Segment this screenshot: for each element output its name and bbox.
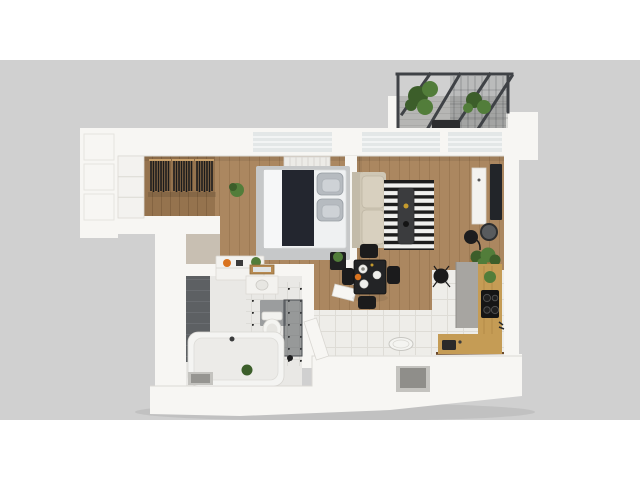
bed-dark-runner	[282, 170, 314, 246]
bed-sheet-fold	[264, 170, 282, 248]
shower-screen	[284, 300, 302, 356]
coffee-table	[398, 188, 414, 244]
plate-food	[361, 267, 365, 271]
closet-bottom-wall	[118, 216, 220, 234]
round-wall-mirror	[481, 224, 497, 240]
table-gold-decor	[404, 204, 409, 209]
clothes-shadow	[148, 192, 216, 197]
tv-console	[472, 168, 486, 224]
left-wall-niche	[188, 372, 213, 385]
plate-3	[360, 280, 368, 288]
corner-plant-leaf	[229, 183, 237, 191]
kitchen-sink	[442, 340, 456, 350]
table-black-decor	[403, 221, 409, 227]
black-bin	[287, 355, 293, 361]
plate-2	[373, 271, 381, 279]
apartment-3d-render	[0, 60, 640, 420]
dining-chair-north	[360, 244, 378, 258]
mirror-glass	[253, 267, 271, 272]
tub-faucet	[230, 337, 235, 342]
front-wall-niche	[396, 366, 430, 392]
table-candle	[371, 264, 374, 267]
sofa-cushion-2	[362, 210, 384, 244]
pillow-4	[322, 205, 340, 218]
dining-chair-east	[387, 266, 400, 284]
washbasin	[256, 280, 268, 290]
counter-plant	[484, 271, 496, 283]
white-wardrobe	[118, 156, 144, 218]
pillow-3	[322, 179, 340, 192]
cooktop	[481, 290, 499, 318]
kitchen-gray-wall	[456, 262, 478, 328]
console-item	[478, 179, 481, 182]
left-wing-wall	[80, 128, 118, 238]
letterbox-top	[0, 0, 640, 60]
tv	[490, 164, 502, 220]
dining-chair-west	[342, 268, 354, 285]
right-outer-wall	[504, 148, 519, 360]
bathroom-plant	[242, 365, 253, 376]
sofa-cushion-1	[362, 176, 384, 208]
beige-sofa	[352, 172, 386, 248]
left-outer-wall	[155, 234, 186, 390]
floorplan-screenshot	[0, 0, 640, 480]
nightstand-plant	[333, 252, 343, 262]
dresser-black-item	[236, 260, 243, 266]
orange-dish	[355, 274, 361, 280]
dining-chair-south	[358, 296, 376, 309]
render-area	[0, 60, 640, 420]
sink-faucet	[458, 340, 461, 343]
letterbox-bottom	[0, 420, 640, 480]
orange-bowl	[223, 259, 231, 267]
